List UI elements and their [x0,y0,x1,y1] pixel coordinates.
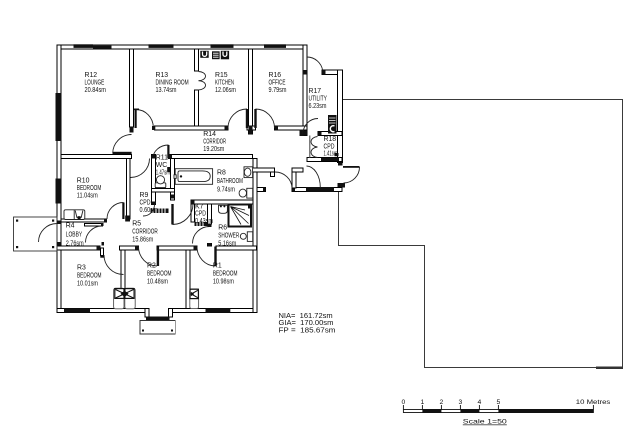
svg-text:R2: R2 [147,263,156,270]
svg-text:BEDROOM: BEDROOM [77,273,102,280]
svg-text:1: 1 [421,399,425,406]
svg-text:0: 0 [402,399,406,406]
svg-text:R5: R5 [132,221,141,228]
svg-text:R10: R10 [77,178,90,185]
svg-text:10.01sm: 10.01sm [77,281,98,288]
svg-text:LOUNGE: LOUNGE [85,80,105,87]
svg-text:BEDROOM: BEDROOM [77,185,102,192]
svg-text:4: 4 [478,399,482,406]
svg-text:2.76sm: 2.76sm [66,240,84,247]
svg-text:10.98sm: 10.98sm [213,278,234,285]
svg-text:WC: WC [156,162,168,169]
svg-text:11.04sm: 11.04sm [77,193,98,200]
svg-text:5: 5 [497,399,501,406]
svg-text:R1: R1 [213,262,222,269]
svg-text:BATHROOM: BATHROOM [217,178,243,185]
svg-text:R4: R4 [66,223,75,230]
svg-text:R17: R17 [309,88,322,95]
svg-text:R3: R3 [77,265,86,272]
svg-text:R13: R13 [156,72,169,79]
svg-text:R16: R16 [269,72,282,79]
svg-text:15.86sm: 15.86sm [132,237,153,244]
svg-text:3: 3 [459,399,463,406]
svg-text:R6: R6 [218,225,227,232]
svg-text:LOBBY: LOBBY [66,232,83,239]
svg-text:OFFICE: OFFICE [269,80,286,87]
svg-text:K7: K7 [195,204,204,211]
svg-text:CORRIDOR: CORRIDOR [132,229,158,236]
svg-text:BEDROOM: BEDROOM [147,271,172,278]
svg-text:BEDROOM: BEDROOM [213,270,238,277]
svg-text:CPD: CPD [324,144,335,151]
svg-text:0.60sm: 0.60sm [140,207,158,214]
svg-text:10 Metres: 10 Metres [576,399,611,406]
svg-text:R15: R15 [215,72,228,79]
svg-text:20.84sm: 20.84sm [85,87,107,94]
svg-text:R12: R12 [85,72,98,79]
svg-text:SHOWER: SHOWER [218,233,239,240]
svg-text:CPD: CPD [195,211,206,218]
svg-text:5.16sm: 5.16sm [218,240,236,247]
svg-text:1.41sm: 1.41sm [324,151,338,158]
svg-text:CORRIDOR: CORRIDOR [203,139,226,146]
svg-text:2: 2 [440,399,444,406]
svg-text:R11: R11 [156,155,168,162]
svg-text:FP = 185.67sm: FP = 185.67sm [279,325,336,334]
svg-text:KITCHEN: KITCHEN [215,80,234,87]
svg-text:9.74sm: 9.74sm [217,187,235,194]
svg-text:UTILITY: UTILITY [309,96,328,103]
svg-text:10.48sm: 10.48sm [147,279,168,286]
svg-text:R8: R8 [217,170,226,177]
svg-text:12.06sm: 12.06sm [215,87,236,94]
svg-text:19.20sm: 19.20sm [203,146,224,153]
svg-text:Scale 1=50: Scale 1=50 [463,419,507,426]
svg-text:6.23sm: 6.23sm [309,103,327,110]
svg-text:1.47sm: 1.47sm [156,170,170,177]
svg-text:R14: R14 [203,131,216,138]
svg-text:13.74sm: 13.74sm [156,87,177,94]
svg-text:R9: R9 [140,192,149,199]
svg-text:DINING ROOM: DINING ROOM [156,80,189,87]
svg-text:R18: R18 [324,136,337,143]
svg-text:CPD: CPD [140,200,151,207]
svg-text:9.79sm: 9.79sm [269,87,287,94]
